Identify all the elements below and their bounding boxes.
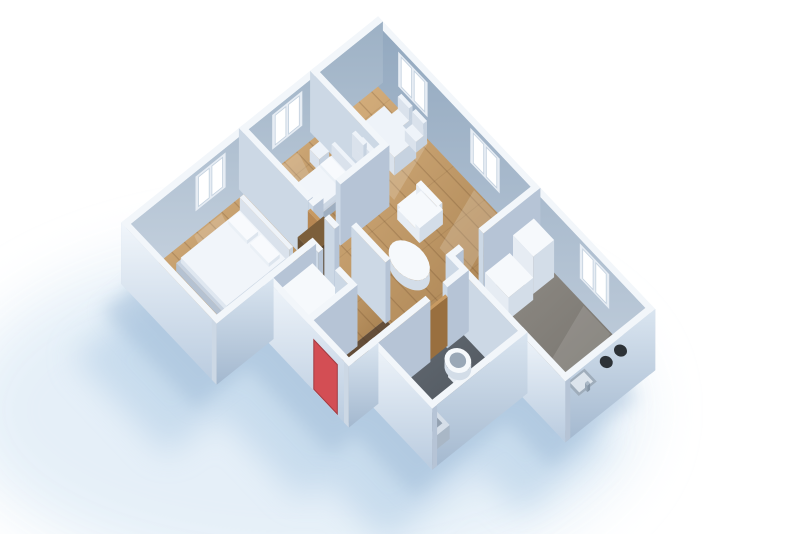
toilet-bowl [445, 348, 472, 380]
kitchen-faucet [585, 381, 590, 392]
floorplan-render: 3D isometric apartment floor plan render… [0, 0, 800, 534]
floorplan-svg: 3D isometric apartment floor plan render… [0, 0, 800, 534]
